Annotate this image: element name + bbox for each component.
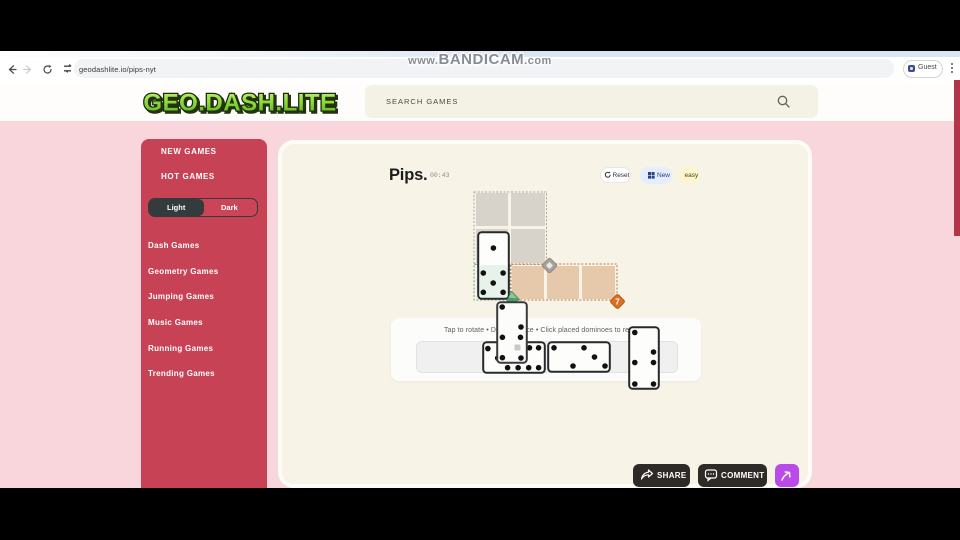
svg-text:GEO.DASH.LITE: GEO.DASH.LITE bbox=[143, 90, 336, 117]
svg-text:7: 7 bbox=[615, 297, 620, 306]
